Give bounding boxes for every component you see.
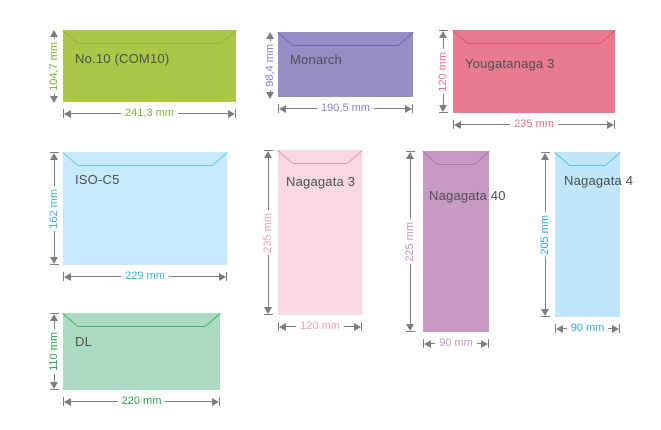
flap-line-left (277, 150, 293, 164)
dimension-line (71, 276, 121, 277)
dimension-line (268, 158, 269, 210)
height-dimension-nagagata40: 225 mm (402, 151, 418, 332)
flap-line-bottom (438, 164, 474, 165)
flap-line-bottom (78, 43, 221, 44)
dimension-line (286, 108, 317, 109)
dimension-end-tick (614, 120, 615, 129)
arrow-down-icon (541, 309, 549, 316)
width-dimension-label: 120 mm (296, 321, 344, 332)
width-dimension-label: 90 mm (567, 323, 609, 334)
dimension-line (558, 124, 607, 125)
height-dimension-label: 104,7 mm (49, 39, 60, 94)
width-dimension-label: 229 mm (121, 271, 169, 282)
flap-line-left (554, 152, 570, 166)
dimension-end-tick (50, 389, 59, 390)
envelope-nagagata40: Nagagata 40 (423, 151, 489, 332)
width-dimension-isoc5: 229 mm (63, 270, 227, 283)
dimension-line (169, 276, 219, 277)
dimension-line (54, 374, 55, 382)
flap-line-left (277, 32, 293, 46)
flap-line-left (422, 151, 438, 165)
dimension-line (374, 108, 405, 109)
height-dimension-label: 120 mm (438, 49, 449, 95)
dimension-end-tick (412, 104, 413, 113)
height-dimension-nagagata3: 235 mm (260, 150, 276, 315)
envelope-nagagata4: Nagagata 4 (555, 152, 620, 317)
flap-line-bottom (293, 163, 347, 164)
dimension-line (54, 160, 55, 186)
arrow-up-icon (266, 32, 274, 39)
arrow-up-icon (406, 152, 414, 159)
arrow-left-icon (556, 325, 563, 333)
width-dimension-yougatanaga3: 235 mm (453, 118, 615, 131)
dimension-end-tick (488, 339, 489, 348)
arrow-left-icon (64, 273, 71, 281)
dimension-line (410, 264, 411, 324)
dimension-line (344, 326, 354, 327)
arrow-down-icon (50, 382, 58, 389)
arrow-down-icon (266, 92, 274, 99)
flap-line-right (212, 152, 228, 166)
envelope-name: Nagagata 4 (564, 173, 633, 188)
flap-line-right (221, 30, 237, 44)
dimension-end-tick (361, 322, 362, 331)
envelope-yougatanaga3: Yougatanaga 3 (453, 30, 615, 113)
height-dimension-label: 205 mm (540, 212, 551, 258)
arrow-left-icon (279, 105, 286, 113)
dimension-line (268, 255, 269, 307)
height-dimension-isoc5: 162 mm (46, 152, 62, 265)
flap-line-right (205, 313, 221, 327)
height-dimension-nagagata4: 205 mm (537, 152, 553, 317)
arrow-left-icon (64, 110, 71, 118)
flap-line-bottom (78, 165, 212, 166)
dimension-end-tick (264, 314, 273, 315)
arrow-left-icon (279, 323, 286, 331)
envelope-name: ISO-C5 (75, 172, 120, 187)
arrow-up-icon (50, 153, 58, 160)
width-dimension-label: 190,5 mm (317, 103, 374, 114)
flap-line-left (62, 30, 78, 44)
envelope-name: No.10 (COM10) (75, 51, 169, 66)
envelope-name: Yougatanaga 3 (465, 56, 555, 71)
width-dimension-label: 235 mm (510, 119, 558, 130)
arrow-down-icon (50, 257, 58, 264)
envelope-dl: DL (63, 313, 220, 390)
flap-line-bottom (570, 165, 605, 166)
dimension-end-tick (219, 397, 220, 406)
dimension-end-tick (406, 331, 415, 332)
dimension-line (286, 326, 296, 327)
dimension-line (54, 231, 55, 257)
dimension-line (54, 321, 55, 329)
arrow-right-icon (612, 325, 619, 333)
width-dimension-nagagata40: 90 mm (423, 337, 489, 350)
width-dimension-no10: 241,3 mm (63, 107, 236, 120)
width-dimension-nagagata3: 120 mm (278, 320, 362, 333)
envelope-name: Nagagata 3 (286, 174, 355, 189)
dimension-end-tick (541, 316, 550, 317)
arrow-left-icon (424, 340, 431, 348)
dimension-end-tick (619, 324, 620, 333)
arrow-down-icon (264, 307, 272, 314)
width-dimension-nagagata4: 90 mm (555, 322, 620, 335)
envelope-nagagata3: Nagagata 3 (278, 150, 362, 315)
flap-line-left (452, 30, 468, 44)
arrow-down-icon (406, 324, 414, 331)
width-dimension-label: 241,3 mm (121, 108, 178, 119)
arrow-right-icon (607, 121, 614, 129)
arrow-right-icon (405, 105, 412, 113)
arrow-right-icon (354, 323, 361, 331)
dimension-line (178, 113, 228, 114)
height-dimension-no10: 104,7 mm (46, 30, 62, 102)
flap-line-left (62, 313, 78, 327)
height-dimension-label: 110 mm (49, 329, 60, 374)
dimension-line (545, 160, 546, 212)
height-dimension-monarch: 98,4 mm (262, 32, 278, 97)
flap-line-bottom (293, 45, 398, 46)
envelope-name: DL (75, 334, 92, 349)
flap-line-bottom (78, 326, 205, 327)
width-dimension-dl: 220 mm (63, 395, 220, 408)
dimension-line (461, 124, 510, 125)
width-dimension-label: 220 mm (118, 396, 166, 407)
dimension-end-tick (50, 264, 59, 265)
arrow-right-icon (481, 340, 488, 348)
envelope-name: Monarch (290, 52, 342, 67)
envelope-name: Nagagata 40 (429, 188, 506, 203)
dimension-line (443, 94, 444, 105)
arrow-down-icon (50, 96, 58, 103)
arrow-right-icon (219, 273, 226, 281)
flap-line-right (347, 150, 363, 164)
envelope-no10: No.10 (COM10) (63, 30, 236, 102)
flap-line-right (474, 151, 490, 165)
dimension-line (545, 257, 546, 309)
dimension-end-tick (235, 109, 236, 118)
arrow-left-icon (454, 121, 461, 129)
envelope-isoc5: ISO-C5 (63, 152, 227, 265)
dimension-end-tick (226, 272, 227, 281)
height-dimension-label: 98,4 mm (265, 41, 276, 90)
width-dimension-monarch: 190,5 mm (278, 102, 413, 115)
envelope-monarch: Monarch (278, 32, 413, 97)
width-dimension-label: 90 mm (435, 338, 477, 349)
flap-line-right (600, 30, 616, 44)
dimension-line (165, 401, 212, 402)
arrow-left-icon (64, 398, 71, 406)
dimension-line (71, 401, 118, 402)
arrow-right-icon (228, 110, 235, 118)
arrow-down-icon (439, 105, 447, 112)
arrow-up-icon (50, 314, 58, 321)
arrow-up-icon (264, 151, 272, 158)
height-dimension-label: 235 mm (263, 210, 274, 256)
height-dimension-label: 162 mm (49, 186, 60, 232)
dimension-line (71, 113, 121, 114)
dimension-line (410, 159, 411, 219)
arrow-up-icon (541, 153, 549, 160)
arrow-right-icon (212, 398, 219, 406)
dimension-line (443, 38, 444, 49)
envelope-sizes-diagram: { "diagram": { "subject": "Envelope size… (0, 0, 661, 430)
arrow-up-icon (439, 31, 447, 38)
flap-line-right (398, 32, 414, 46)
height-dimension-yougatanaga3: 120 mm (435, 30, 451, 113)
flap-line-right (605, 152, 621, 166)
flap-line-bottom (468, 43, 600, 44)
height-dimension-label: 225 mm (405, 219, 416, 265)
height-dimension-dl: 110 mm (46, 313, 62, 390)
arrow-up-icon (50, 30, 58, 37)
dimension-end-tick (439, 112, 448, 113)
flap-line-left (62, 152, 78, 166)
